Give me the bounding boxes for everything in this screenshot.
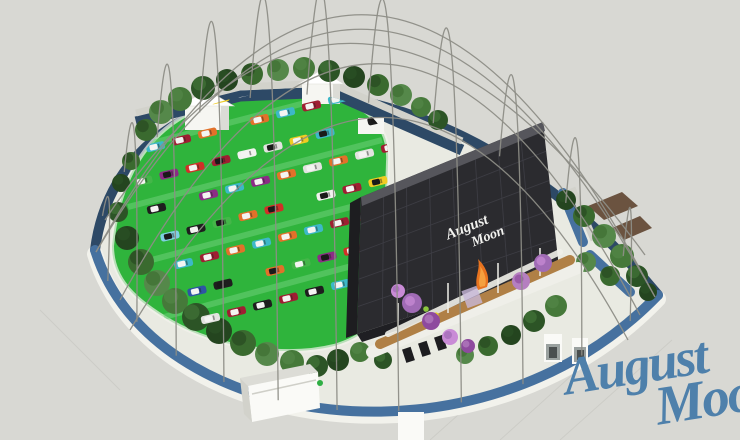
tree (545, 295, 567, 317)
tree (478, 336, 498, 356)
tree (191, 76, 215, 100)
tree (610, 244, 634, 268)
patio-table (423, 306, 429, 312)
tree (523, 310, 545, 332)
tree (112, 174, 130, 192)
tree (390, 84, 412, 106)
ornamental-tree (422, 312, 440, 330)
tree (135, 119, 157, 141)
ornamental-tree (442, 329, 458, 345)
tree (411, 97, 431, 117)
ticket-kiosk-1 (544, 334, 562, 362)
tree (255, 342, 279, 366)
ornamental-tree (391, 284, 405, 298)
tree (343, 66, 365, 88)
south-booth (398, 412, 424, 440)
ornamental-tree (461, 339, 475, 353)
tree (230, 330, 256, 356)
tree (600, 266, 620, 286)
ornamental-tree (534, 254, 552, 272)
tree (327, 349, 349, 371)
ornamental-tree (512, 272, 530, 290)
tree (115, 226, 139, 250)
tree (428, 110, 448, 130)
brand-logo-moon: Moon (652, 366, 740, 429)
tree (293, 57, 315, 79)
entrance-light (317, 380, 323, 386)
tree (592, 224, 616, 248)
ornamental-tree (402, 293, 422, 313)
tree (501, 325, 521, 345)
rendering-stage: August Moon (0, 0, 740, 440)
